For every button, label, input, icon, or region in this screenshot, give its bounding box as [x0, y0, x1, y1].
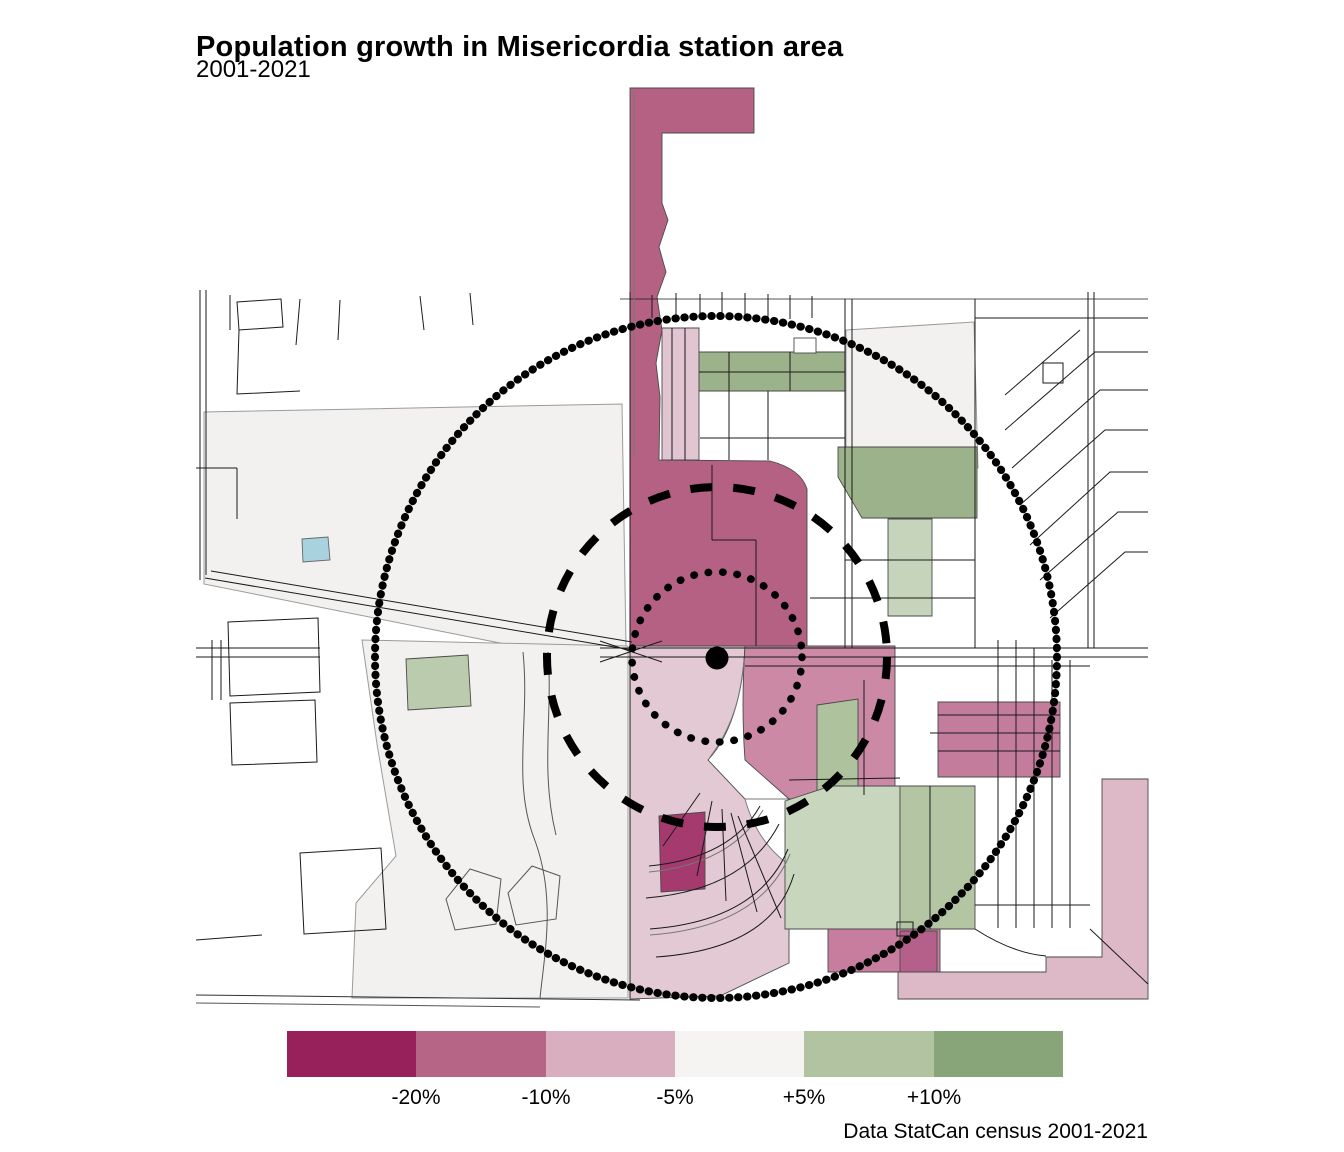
legend-label: -20%: [391, 1086, 440, 1110]
legend-label: -10%: [521, 1086, 570, 1110]
district-west-stable: [204, 404, 626, 652]
legend-label: -5%: [656, 1086, 693, 1110]
region-south-green-right: [900, 786, 975, 929]
region-west-green-parcel: [406, 655, 471, 710]
pond-water: [302, 537, 330, 562]
legend-swatch: [675, 1031, 804, 1077]
legend-swatch: [804, 1031, 933, 1077]
data-source-caption: Data StatCan census 2001-2021: [843, 1120, 1148, 1144]
legend-swatch: [287, 1031, 416, 1077]
legend-color-bar: [287, 1031, 1063, 1077]
region-east-lightgreen-rect: [888, 519, 932, 616]
district-southwest-stable: [352, 640, 628, 998]
legend-swatch: [546, 1031, 675, 1077]
region-strip-light-decline: [662, 328, 699, 460]
station-marker: [706, 647, 729, 670]
legend-swatch: [416, 1031, 545, 1077]
green-band-notch: [794, 338, 816, 353]
legend-label: +5%: [783, 1086, 826, 1110]
legend-swatch: [934, 1031, 1063, 1077]
legend-label: +10%: [907, 1086, 961, 1110]
region-northeast-green: [838, 447, 977, 518]
station-area-map: [0, 0, 1344, 1152]
